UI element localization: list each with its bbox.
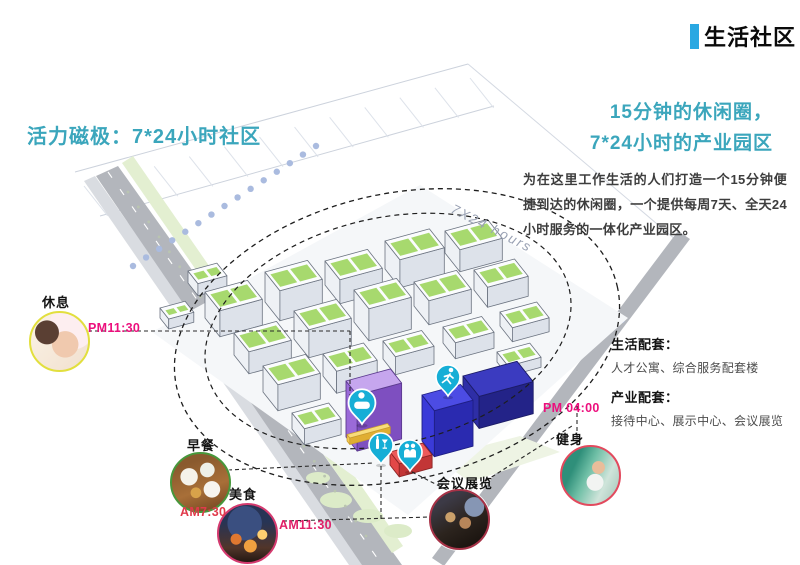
label-food: 美食 <box>229 484 257 503</box>
isometric-site-map: 7X24 hours <box>0 0 800 565</box>
title-accent-bar <box>690 24 699 49</box>
photo-fitness <box>560 445 621 506</box>
photo-rest <box>29 311 90 372</box>
time-breakfast: AM7:30 <box>180 505 226 519</box>
label-fitness: 健身 <box>556 429 584 448</box>
industry-supporting-note: 产业配套： 接待中心、展示中心、会议展览 <box>611 387 796 429</box>
time-fitness: PM 04:00 <box>543 401 600 415</box>
slide: 7X24 hours 生活社区 活力磁极：7*24小时社区 15分钟的休闲圈， … <box>0 0 800 565</box>
time-food: AM11:30 <box>279 518 332 532</box>
page-title-text: 生活社区 <box>704 20 796 52</box>
industry-supporting-label: 产业配套： <box>611 387 796 406</box>
time-rest: PM11:30 <box>88 321 140 335</box>
left-heading: 活力磁极：7*24小时社区 <box>27 120 261 149</box>
photo-conference <box>429 489 490 550</box>
life-supporting-label: 生活配套： <box>611 334 796 353</box>
label-conference: 会议展览 <box>437 473 493 492</box>
life-supporting-note: 生活配套： 人才公寓、综合服务配套楼 <box>611 334 796 376</box>
right-heading-line1: 15分钟的休闲圈， <box>590 97 773 128</box>
life-supporting-content: 人才公寓、综合服务配套楼 <box>611 359 796 376</box>
intro-paragraph: 为在这里工作生活的人们打造一个15分钟便捷到达的休闲圈，一个提供每周7天、全天2… <box>523 167 787 242</box>
page-title: 生活社区 <box>690 20 796 52</box>
right-heading: 15分钟的休闲圈， 7*24小时的产业园区 <box>590 97 773 159</box>
industry-supporting-content: 接待中心、展示中心、会议展览 <box>611 412 796 429</box>
label-breakfast: 早餐 <box>187 435 215 454</box>
photo-breakfast <box>170 452 231 513</box>
right-heading-line2: 7*24小时的产业园区 <box>590 128 773 159</box>
label-rest: 休息 <box>42 292 70 311</box>
